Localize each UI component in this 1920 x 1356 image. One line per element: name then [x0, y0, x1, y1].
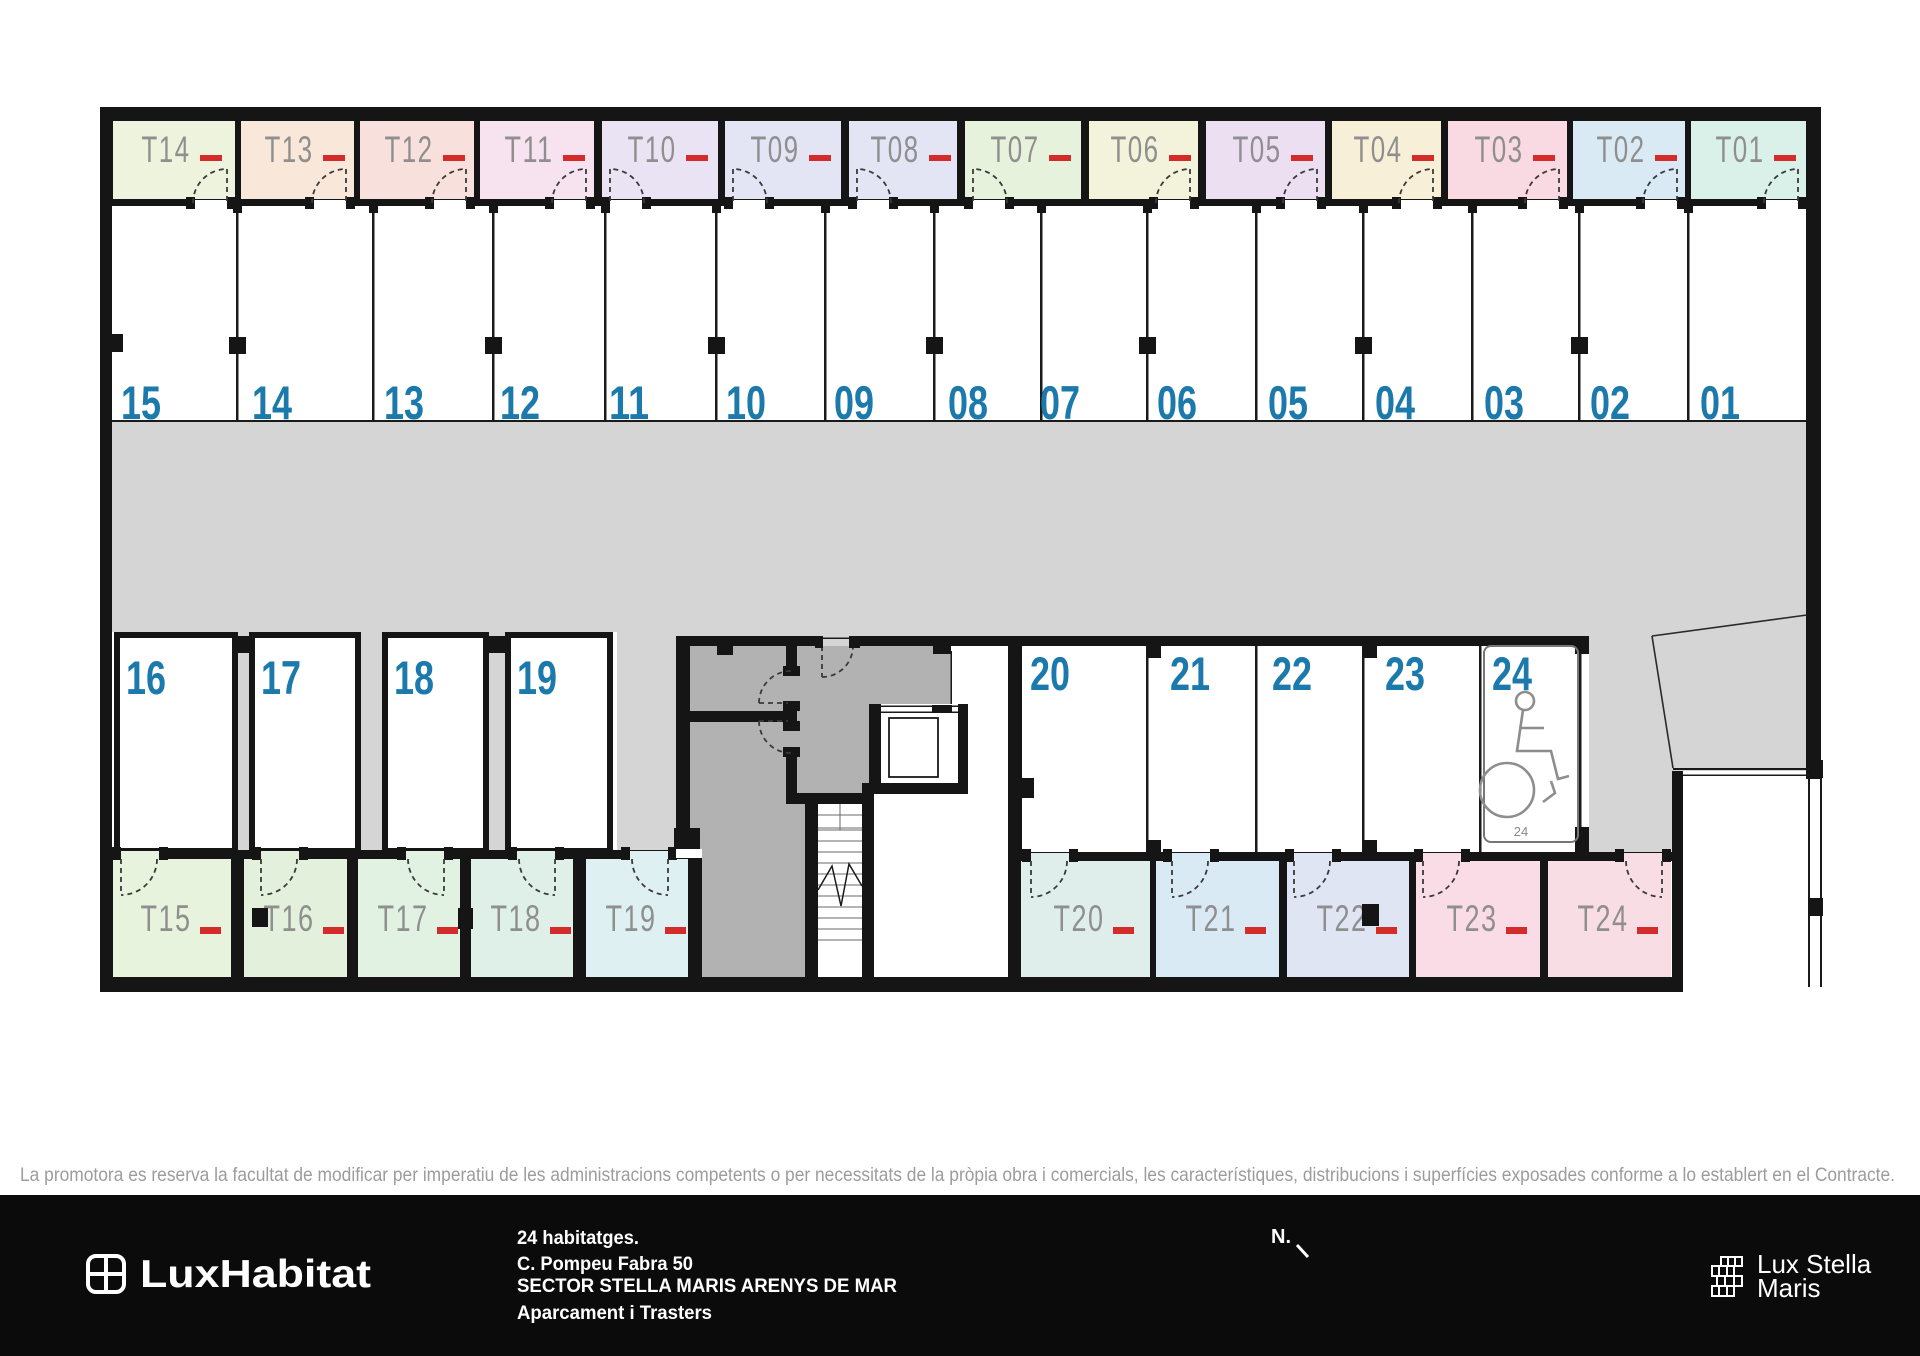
svg-text:T12: T12 [385, 129, 434, 170]
svg-text:13: 13 [384, 376, 424, 429]
svg-text:11: 11 [609, 376, 649, 429]
svg-text:09: 09 [834, 376, 874, 429]
svg-text:T16: T16 [264, 898, 315, 939]
svg-text:08: 08 [948, 376, 988, 429]
svg-text:24: 24 [1514, 824, 1528, 839]
svg-text:07: 07 [1040, 376, 1080, 429]
svg-text:T21: T21 [1186, 898, 1237, 939]
svg-text:T01: T01 [1716, 129, 1765, 170]
svg-text:21: 21 [1170, 647, 1210, 700]
svg-text:C. Pompeu Fabra 50: C. Pompeu Fabra 50 [517, 1254, 693, 1275]
svg-text:Aparcament i Trasters: Aparcament i Trasters [517, 1303, 712, 1324]
svg-text:22: 22 [1272, 647, 1312, 700]
svg-text:19: 19 [517, 651, 557, 704]
svg-text:T15: T15 [141, 898, 192, 939]
svg-text:T11: T11 [505, 129, 554, 170]
svg-text:24 habitatges.: 24 habitatges. [517, 1228, 639, 1249]
svg-text:T02: T02 [1597, 129, 1646, 170]
svg-text:T10: T10 [628, 129, 677, 170]
svg-text:06: 06 [1157, 376, 1197, 429]
svg-text:T17: T17 [378, 898, 429, 939]
svg-text:T03: T03 [1475, 129, 1524, 170]
svg-text:12: 12 [500, 376, 540, 429]
svg-text:T23: T23 [1447, 898, 1498, 939]
svg-text:N.: N. [1271, 1226, 1291, 1248]
svg-text:01: 01 [1700, 376, 1740, 429]
svg-text:T04: T04 [1354, 129, 1403, 170]
svg-text:LuxHabitat: LuxHabitat [140, 1253, 371, 1296]
svg-text:10: 10 [726, 376, 766, 429]
svg-text:SECTOR STELLA MARIS ARENYS DE: SECTOR STELLA MARIS ARENYS DE MAR [517, 1276, 897, 1297]
svg-text:T19: T19 [606, 898, 657, 939]
svg-text:18: 18 [394, 651, 434, 704]
svg-text:La promotora es reserva la fac: La promotora es reserva la facultat de m… [20, 1164, 1895, 1186]
svg-text:23: 23 [1385, 647, 1425, 700]
svg-text:T22: T22 [1317, 898, 1368, 939]
svg-text:14: 14 [252, 376, 292, 429]
svg-text:T07: T07 [991, 129, 1040, 170]
svg-text:T24: T24 [1578, 898, 1629, 939]
svg-text:05: 05 [1268, 376, 1308, 429]
svg-text:T05: T05 [1233, 129, 1282, 170]
svg-text:03: 03 [1484, 376, 1524, 429]
svg-text:T14: T14 [142, 129, 191, 170]
svg-text:Maris: Maris [1757, 1273, 1821, 1303]
svg-text:15: 15 [121, 376, 161, 429]
svg-text:17: 17 [261, 651, 301, 704]
svg-text:T09: T09 [751, 129, 800, 170]
svg-text:04: 04 [1375, 376, 1415, 429]
svg-text:20: 20 [1030, 647, 1070, 700]
svg-text:02: 02 [1590, 376, 1630, 429]
svg-text:16: 16 [126, 651, 166, 704]
svg-text:T13: T13 [265, 129, 314, 170]
svg-text:T08: T08 [871, 129, 920, 170]
svg-text:T20: T20 [1054, 898, 1105, 939]
svg-text:T18: T18 [491, 898, 542, 939]
svg-text:T06: T06 [1111, 129, 1160, 170]
